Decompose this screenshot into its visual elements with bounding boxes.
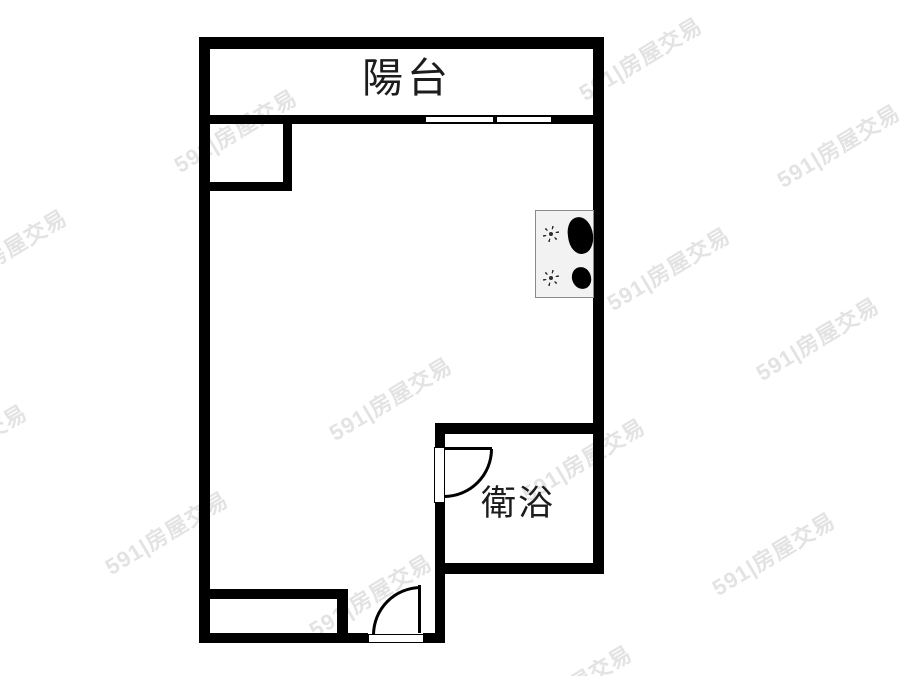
bathroom-label: 衛浴: [481, 486, 555, 521]
stove-flame-icon-top: [543, 226, 559, 242]
wall-top: [199, 37, 604, 49]
wall-cabinet-top: [199, 589, 348, 599]
wall-alcove-bottom: [199, 182, 292, 191]
wall-cabinet-right: [337, 589, 348, 643]
wall-left: [199, 37, 210, 643]
stove-burner-small-icon: [570, 266, 593, 291]
watermark-text: 591|房屋交易: [502, 637, 638, 676]
stove-burner-large-icon: [566, 216, 595, 256]
sliding-window-pane-left: [425, 116, 494, 123]
sliding-window-pane-right: [496, 116, 552, 123]
watermark-text: 591|房屋交易: [0, 396, 33, 495]
watermark-text: 591|房屋交易: [770, 96, 900, 195]
watermark-text: 591|房屋交易: [98, 483, 234, 582]
entrance-door-threshold: [368, 634, 424, 643]
wall-bottom-stub: [423, 633, 445, 643]
entrance-door-swing-arc: [372, 586, 421, 635]
balcony-label: 陽台: [362, 58, 452, 99]
wall-bathroom-top: [435, 423, 604, 434]
stove-flame-icon-bottom: [543, 270, 559, 286]
watermark-text: 591|房屋交易: [0, 201, 73, 300]
wall-bathroom-bottom: [435, 563, 604, 574]
watermark-text: 591|房屋交易: [749, 289, 885, 388]
wall-alcove-right: [283, 115, 292, 191]
watermark-text: 591|房屋交易: [705, 504, 841, 603]
floorplan-image: 591|房屋交易591|房屋交易591|房屋交易591|房屋交易591|房屋交易…: [0, 0, 900, 676]
watermark-text: 591|房屋交易: [600, 219, 736, 318]
stove-icon: [535, 210, 594, 298]
wall-bathroom-left-upper: [435, 423, 445, 447]
